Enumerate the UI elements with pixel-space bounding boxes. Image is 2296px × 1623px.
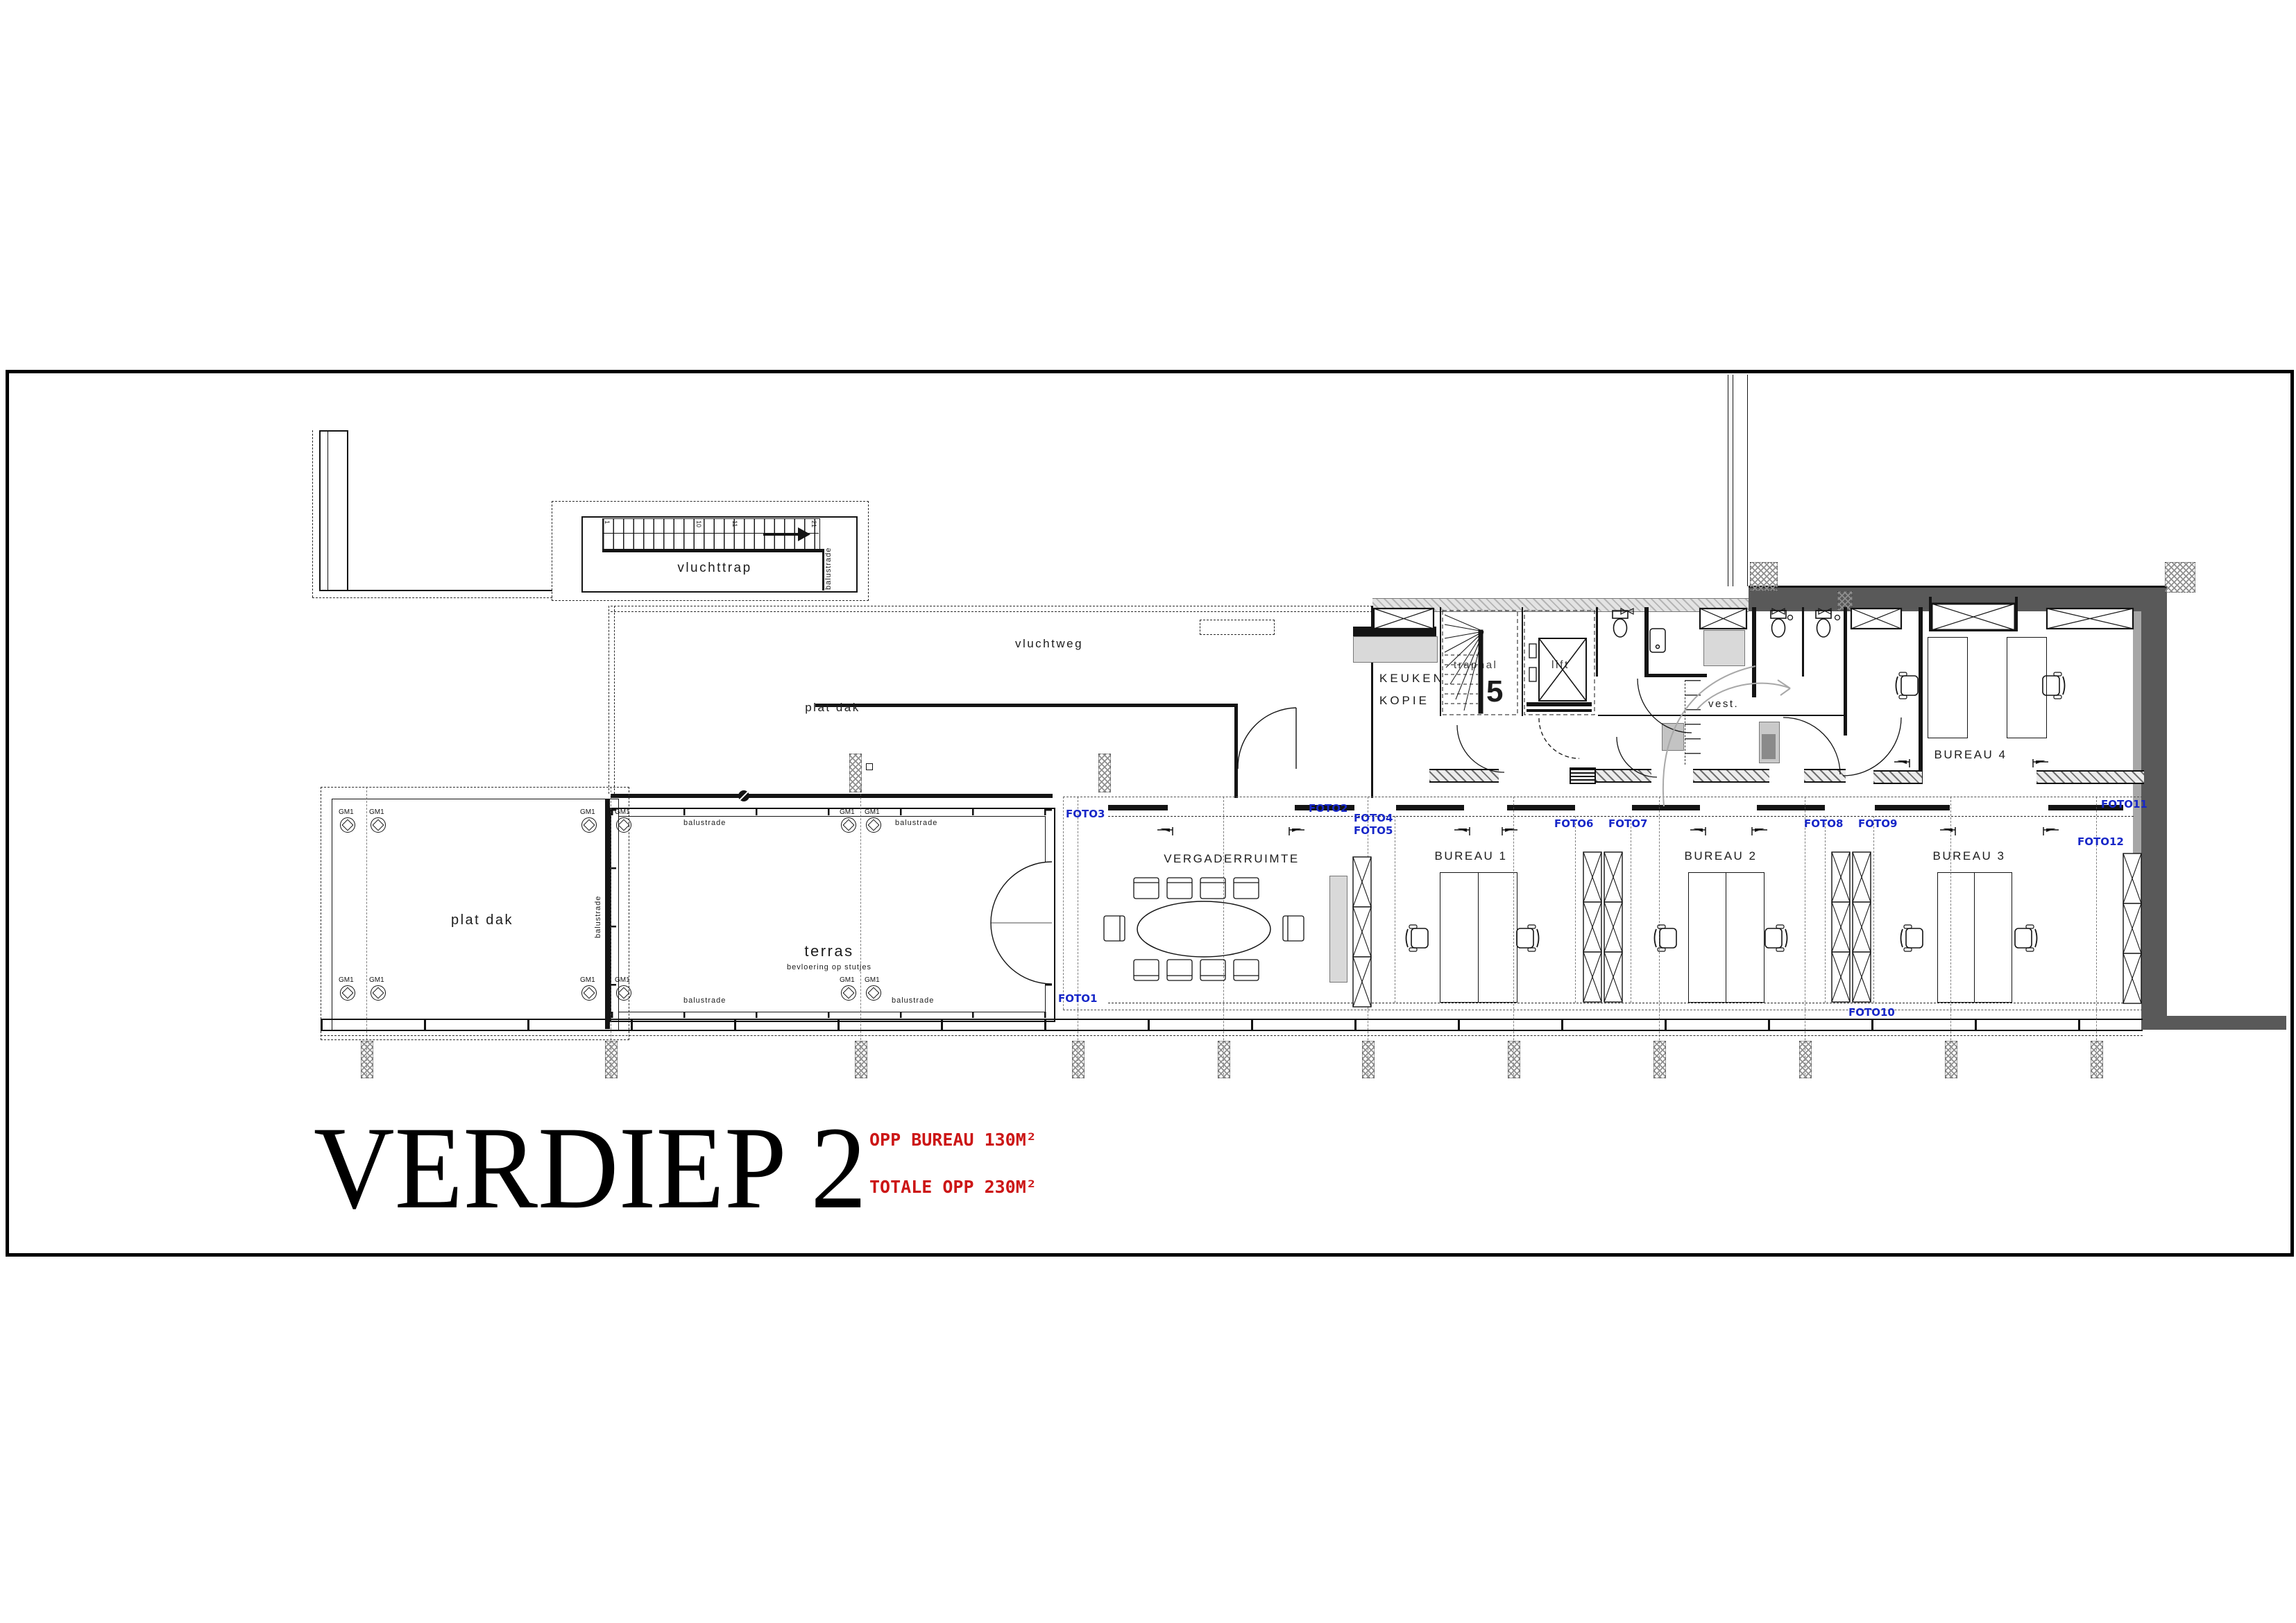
- door-flag: [2043, 827, 2059, 835]
- office-chair: [1896, 672, 1919, 699]
- anchor-symbol: [738, 790, 749, 801]
- office-chair: [1765, 925, 1787, 951]
- door-flag: [1752, 827, 1767, 835]
- door-flag: [1502, 827, 1517, 835]
- chair: [1200, 878, 1225, 899]
- chair: [1167, 878, 1192, 899]
- door-flag: [1690, 827, 1706, 835]
- stair-direction-arrow: [763, 527, 810, 541]
- office-chair: [2043, 672, 2065, 699]
- reference-arrow: [1663, 666, 1790, 806]
- toilet-icon: [1816, 611, 1831, 637]
- floorplan-page: { "title": { "main": "VERDIEP 2", "note1…: [0, 0, 2296, 1623]
- plan-linework: [0, 0, 2296, 1623]
- chair: [1234, 878, 1259, 899]
- office-chair: [1517, 925, 1539, 951]
- chair: [1167, 960, 1192, 980]
- flush-button: [1788, 615, 1793, 620]
- door-flag: [1454, 827, 1470, 835]
- door-flag: [2033, 759, 2048, 767]
- office-chair: [1406, 925, 1429, 951]
- door-flag: [1157, 827, 1173, 835]
- chair: [1134, 878, 1159, 899]
- vent-icon: [1621, 609, 1633, 614]
- door-swing: [1457, 679, 1901, 777]
- office-chair: [2015, 925, 2037, 951]
- meeting-table: [1137, 901, 1270, 957]
- chair: [1200, 960, 1225, 980]
- chair: [1283, 916, 1304, 941]
- office-chair: [1901, 925, 1923, 951]
- french-doors: [991, 862, 1052, 984]
- sink-icon: [1650, 629, 1665, 652]
- chair: [1134, 960, 1159, 980]
- toilet-icon: [1771, 611, 1786, 637]
- toilet-icon: [1613, 611, 1628, 637]
- lift-symbol: [1524, 611, 1595, 715]
- cabinet-column: [1353, 852, 2141, 1007]
- door-flag: [1894, 759, 1910, 767]
- door-flag: [1940, 827, 1955, 835]
- vent-icon: [1772, 609, 1785, 614]
- door-flag: [1289, 827, 1304, 835]
- flush-button: [1835, 615, 1840, 620]
- office-chair: [1655, 925, 1677, 951]
- door-swing: [1238, 708, 1296, 769]
- traphal-stair: [1443, 611, 1517, 715]
- chair: [1234, 960, 1259, 980]
- window-x: [1374, 604, 2133, 630]
- vent-icon: [1819, 609, 1831, 614]
- chair: [1104, 916, 1125, 941]
